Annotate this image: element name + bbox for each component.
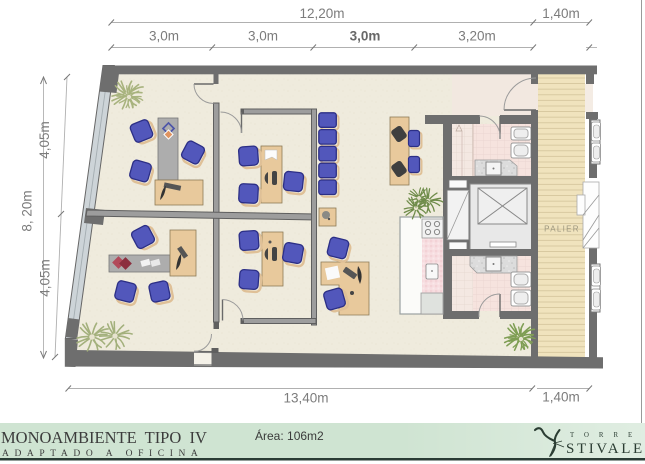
- svg-text:ADAPTADO A OFICINA: ADAPTADO A OFICINA: [2, 449, 203, 459]
- svg-text:3,20m: 3,20m: [458, 29, 496, 44]
- svg-text:1,40m: 1,40m: [542, 6, 580, 21]
- svg-text:4,05m: 4,05m: [37, 121, 52, 159]
- svg-text:TORRE: TORRE: [570, 432, 642, 439]
- svg-text:STIVALE: STIVALE: [566, 441, 645, 457]
- svg-text:3,0m: 3,0m: [149, 29, 179, 44]
- svg-text:Área: 106m2: Área: 106m2: [255, 428, 324, 443]
- svg-text:8, 20m: 8, 20m: [20, 190, 35, 231]
- svg-text:PALIER: PALIER: [544, 225, 580, 234]
- svg-text:3,0m: 3,0m: [248, 29, 278, 44]
- svg-text:4,05m: 4,05m: [38, 259, 53, 297]
- svg-text:13,40m: 13,40m: [283, 391, 328, 406]
- svg-text:1,40m: 1,40m: [542, 390, 580, 405]
- svg-text:12,20m: 12,20m: [299, 6, 344, 21]
- svg-text:3,0m: 3,0m: [350, 29, 381, 44]
- svg-text:MONOAMBIENTE TIPO IV: MONOAMBIENTE TIPO IV: [1, 428, 207, 447]
